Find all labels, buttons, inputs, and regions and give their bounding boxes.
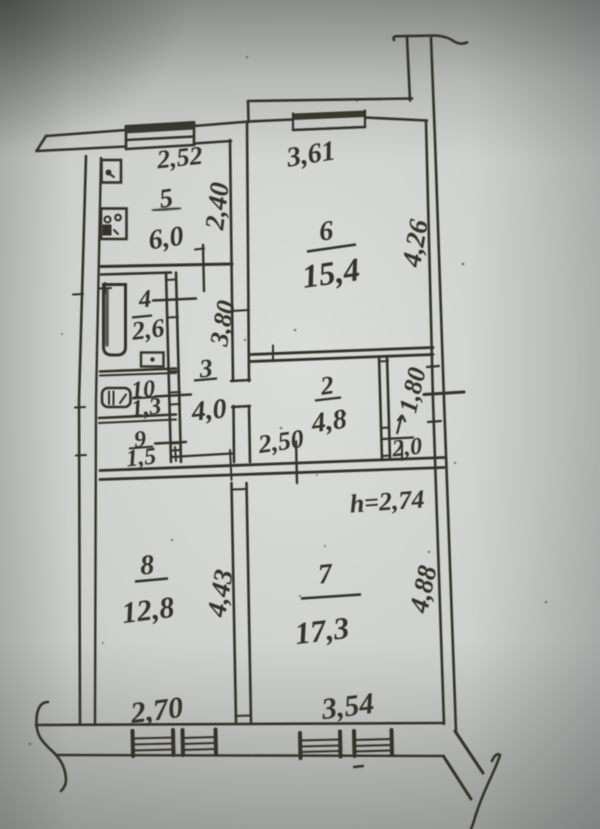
svg-text:h=2,74: h=2,74 — [349, 484, 426, 518]
svg-text:4,0: 4,0 — [189, 393, 228, 428]
svg-text:1,5: 1,5 — [125, 443, 158, 472]
svg-text:2,6: 2,6 — [129, 313, 166, 346]
svg-text:17,3: 17,3 — [293, 610, 351, 651]
svg-text:4,8: 4,8 — [309, 404, 349, 440]
svg-text:2,40: 2,40 — [199, 180, 235, 232]
svg-text:2,0: 2,0 — [390, 433, 424, 462]
svg-text:1,3: 1,3 — [130, 393, 163, 422]
svg-text:6,0: 6,0 — [147, 221, 186, 257]
svg-text:4: 4 — [137, 286, 153, 314]
svg-text:12,8: 12,8 — [120, 591, 176, 630]
svg-text:2,70: 2,70 — [128, 691, 185, 730]
svg-text:3,54: 3,54 — [319, 687, 376, 726]
svg-text:2,52: 2,52 — [155, 141, 204, 175]
svg-text:8: 8 — [139, 549, 156, 581]
